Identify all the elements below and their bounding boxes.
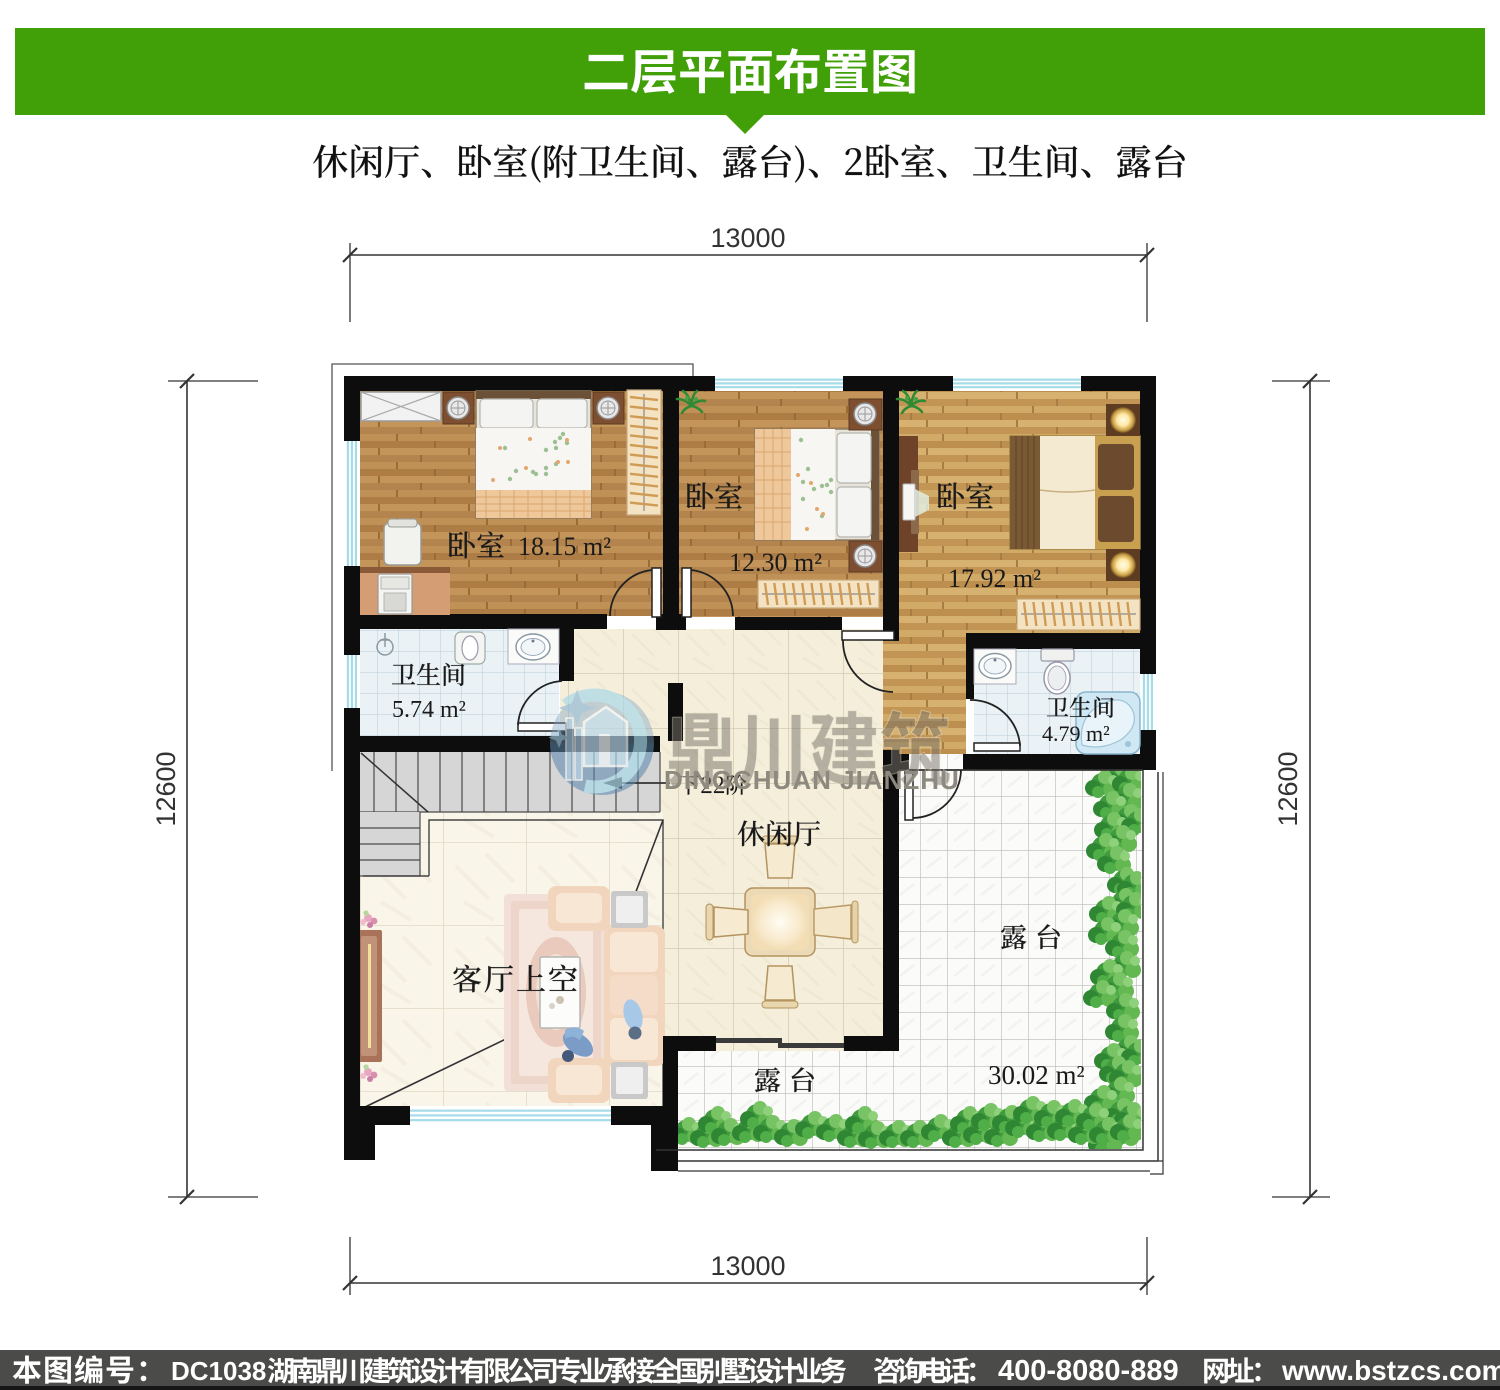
- svg-text:400-8080-889: 400-8080-889: [998, 1355, 1179, 1387]
- svg-text:12600: 12600: [1273, 751, 1303, 826]
- svg-text:12.30 m²: 12.30 m²: [729, 548, 822, 577]
- svg-text:13000: 13000: [710, 223, 785, 253]
- svg-text:DINGCHUAN JIANZHU: DINGCHUAN JIANZHU: [664, 765, 960, 795]
- svg-text:30.02 m²: 30.02 m²: [988, 1060, 1085, 1090]
- svg-text:DC1038: DC1038: [171, 1356, 266, 1386]
- svg-text:www.bstzcs.com: www.bstzcs.com: [1281, 1355, 1500, 1386]
- svg-text:12600: 12600: [151, 751, 181, 826]
- svg-text:18.15 m²: 18.15 m²: [518, 532, 611, 561]
- svg-text:4.79 m²: 4.79 m²: [1042, 721, 1110, 746]
- svg-text:5.74 m²: 5.74 m²: [392, 697, 466, 723]
- svg-text:13000: 13000: [710, 1251, 785, 1281]
- svg-text:17.92 m²: 17.92 m²: [948, 564, 1041, 593]
